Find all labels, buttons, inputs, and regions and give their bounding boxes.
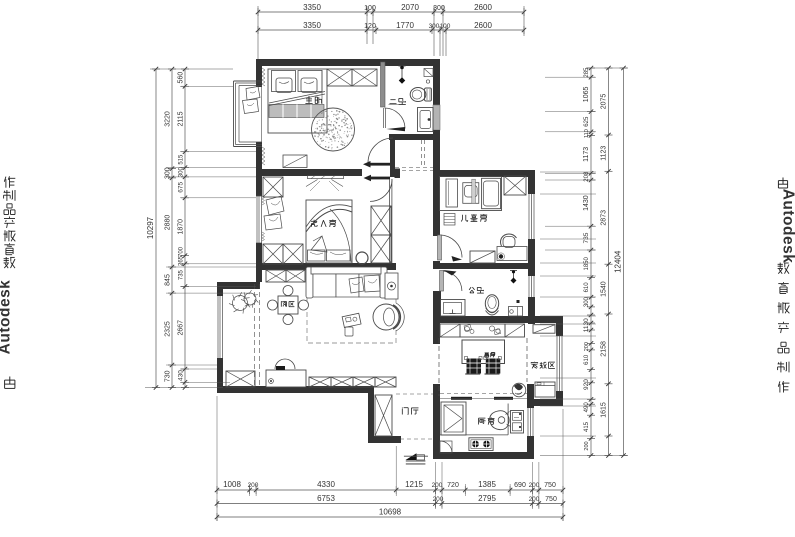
svg-text:515: 515: [179, 154, 185, 165]
svg-text:415: 415: [584, 421, 590, 432]
svg-text:1008: 1008: [223, 480, 241, 489]
svg-text:3220: 3220: [165, 111, 172, 127]
svg-text:735: 735: [179, 269, 185, 280]
svg-text:1850: 1850: [584, 256, 590, 270]
svg-text:300: 300: [584, 296, 590, 307]
svg-text:700: 700: [179, 246, 185, 257]
svg-text:2115: 2115: [178, 111, 185, 126]
svg-text:1173: 1173: [583, 147, 590, 162]
svg-text:4330: 4330: [317, 480, 335, 489]
svg-text:1770: 1770: [396, 21, 414, 30]
svg-text:750: 750: [544, 482, 556, 489]
svg-text:1615: 1615: [601, 402, 608, 418]
svg-text:100: 100: [440, 23, 451, 30]
svg-text:200: 200: [529, 482, 540, 489]
svg-text:750: 750: [545, 496, 557, 503]
svg-text:300: 300: [429, 23, 440, 30]
svg-text:10698: 10698: [379, 508, 402, 517]
svg-text:2600: 2600: [474, 3, 492, 12]
svg-text:208: 208: [584, 171, 590, 182]
svg-text:560: 560: [178, 72, 185, 84]
svg-text:3350: 3350: [303, 3, 321, 12]
svg-text:2075: 2075: [601, 94, 608, 110]
svg-text:675: 675: [178, 181, 185, 192]
svg-text:Autodesk: Autodesk: [780, 189, 795, 264]
svg-text:720: 720: [447, 482, 459, 489]
svg-text:200: 200: [584, 441, 590, 450]
svg-text:Autodesk: Autodesk: [0, 280, 14, 355]
svg-text:2070: 2070: [401, 3, 419, 12]
svg-text:610: 610: [584, 354, 590, 365]
svg-text:285: 285: [584, 67, 590, 78]
svg-text:690: 690: [514, 482, 526, 489]
svg-text:3350: 3350: [303, 21, 321, 30]
svg-text:2795: 2795: [478, 494, 496, 503]
svg-text:12404: 12404: [614, 250, 623, 273]
svg-text:2600: 2600: [474, 21, 492, 30]
svg-text:200: 200: [433, 496, 444, 503]
svg-text:300: 300: [433, 5, 445, 12]
svg-text:300: 300: [165, 167, 172, 179]
svg-text:2325: 2325: [165, 321, 172, 337]
svg-text:120: 120: [364, 23, 376, 30]
svg-text:845: 845: [165, 274, 172, 286]
svg-text:10297: 10297: [146, 216, 155, 239]
svg-text:625: 625: [584, 116, 590, 127]
svg-text:6753: 6753: [317, 494, 335, 503]
svg-text:1215: 1215: [405, 480, 423, 489]
svg-text:200: 200: [248, 482, 259, 489]
svg-text:2158: 2158: [601, 341, 608, 357]
svg-text:1870: 1870: [178, 219, 185, 235]
svg-text:1130: 1130: [583, 318, 590, 332]
svg-text:490: 490: [584, 402, 590, 413]
svg-text:735: 735: [583, 232, 590, 243]
svg-text:430: 430: [178, 370, 185, 381]
svg-text:110: 110: [584, 129, 590, 138]
svg-text:200: 200: [432, 482, 443, 489]
svg-text:730: 730: [165, 370, 172, 382]
svg-text:200: 200: [529, 496, 540, 503]
svg-text:200: 200: [584, 342, 590, 351]
svg-text:1540: 1540: [601, 281, 608, 297]
svg-text:265: 265: [179, 255, 185, 266]
svg-text:1385: 1385: [478, 480, 496, 489]
svg-text:610: 610: [584, 282, 590, 293]
svg-text:2873: 2873: [601, 210, 608, 226]
svg-text:1123: 1123: [601, 146, 608, 161]
svg-text:2667: 2667: [178, 320, 185, 336]
svg-text:1430: 1430: [583, 195, 590, 211]
svg-text:100: 100: [364, 5, 376, 12]
svg-text:920: 920: [583, 379, 590, 390]
svg-text:300: 300: [179, 167, 185, 178]
svg-text:2880: 2880: [165, 215, 172, 231]
svg-text:1065: 1065: [583, 87, 590, 103]
